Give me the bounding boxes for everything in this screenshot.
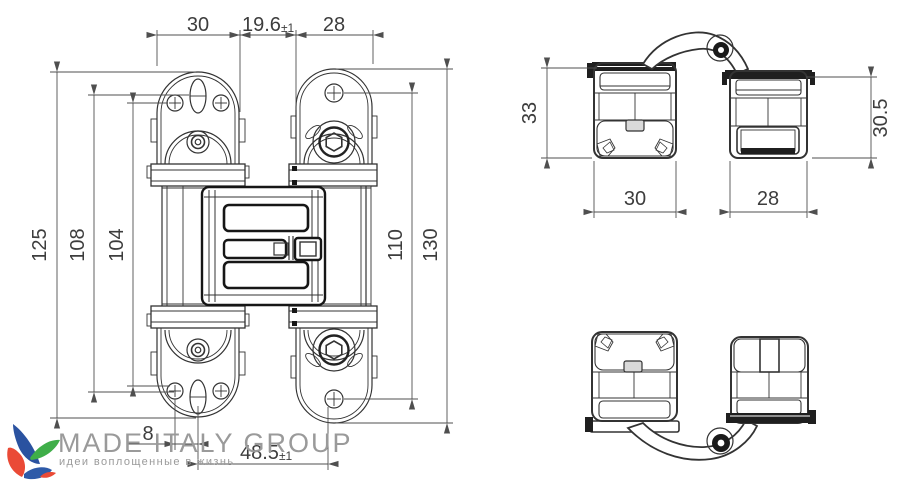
clip-tab: [626, 120, 644, 131]
hex-bolt-icon: [304, 329, 365, 371]
dim-label-28: 28: [323, 14, 345, 36]
dim-label-110: 110: [385, 229, 407, 261]
dim-label-tv-30: 30: [624, 188, 646, 210]
phillips-screw-icon: [167, 95, 183, 111]
technical-drawing-page: 30 19.6±1 28 125 108 104: [0, 0, 900, 482]
cross-screw-hole-icon: [325, 390, 343, 408]
adjustment-screw-icon: [187, 131, 209, 153]
phillips-screw-icon: [213, 383, 229, 399]
dim-label-125: 125: [29, 228, 51, 261]
top-cup-outline: [157, 72, 239, 164]
adjustment-screw-icon: [187, 339, 209, 361]
front-view: [147, 69, 377, 423]
corner-gem: [655, 139, 673, 156]
dim-label-33: 33: [519, 102, 541, 124]
dim-label-30: 30: [187, 14, 209, 36]
open-pivot-arm: [628, 420, 757, 460]
dim-left-108: 108: [67, 95, 189, 392]
logo-tagline: идеи воплощенные в жизнь: [59, 456, 234, 468]
side-tab: [151, 119, 157, 142]
dim-left-104: 104: [106, 103, 170, 386]
logo-title: MADE ITALY GROUP: [58, 428, 353, 459]
hex-bolt-icon: [304, 121, 365, 163]
dim-label-104: 104: [106, 228, 128, 261]
phillips-screw-icon: [213, 95, 229, 111]
side-tab: [239, 119, 245, 142]
dim-label-tv-28: 28: [757, 188, 779, 210]
top-view-closed: [587, 32, 815, 158]
top-view-dimensions: 33 30.5 30 28: [519, 68, 892, 218]
dim-label-108: 108: [67, 228, 89, 261]
corner-gem: [597, 139, 615, 156]
dim-tv-33: 33: [519, 68, 597, 158]
dim-top-19-6: 19.6±1: [240, 14, 296, 36]
dim-top-30: 30: [157, 14, 240, 36]
center-linkage-mechanism: [202, 187, 325, 305]
dim-top-28: 28: [296, 14, 373, 36]
made-italy-group-logo: MADE ITALY GROUP идеи воплощенные в жизн…: [0, 416, 420, 482]
dim-tv-28: 28: [730, 161, 807, 218]
dim-tv-30-5: 30.5: [806, 77, 892, 158]
open-door-box: [726, 337, 816, 424]
dim-label-130: 130: [420, 228, 442, 261]
dim-label-30-5: 30.5: [870, 99, 892, 138]
dim-label-19-6: 19.6±1: [242, 14, 295, 36]
top-view-open: [585, 332, 816, 460]
cross-screw-hole-icon: [325, 84, 343, 102]
phillips-screw-icon: [167, 383, 183, 399]
closed-frame-box: [587, 62, 676, 158]
slot: [760, 339, 779, 372]
dim-tv-30: 30: [594, 161, 676, 218]
clip-tab: [624, 361, 642, 372]
logo-bird-icon: [2, 418, 62, 482]
closed-door-box: [722, 70, 815, 158]
hinge-technical-drawing: 30 19.6±1 28 125 108 104: [0, 0, 900, 482]
open-frame-box: [585, 332, 679, 432]
